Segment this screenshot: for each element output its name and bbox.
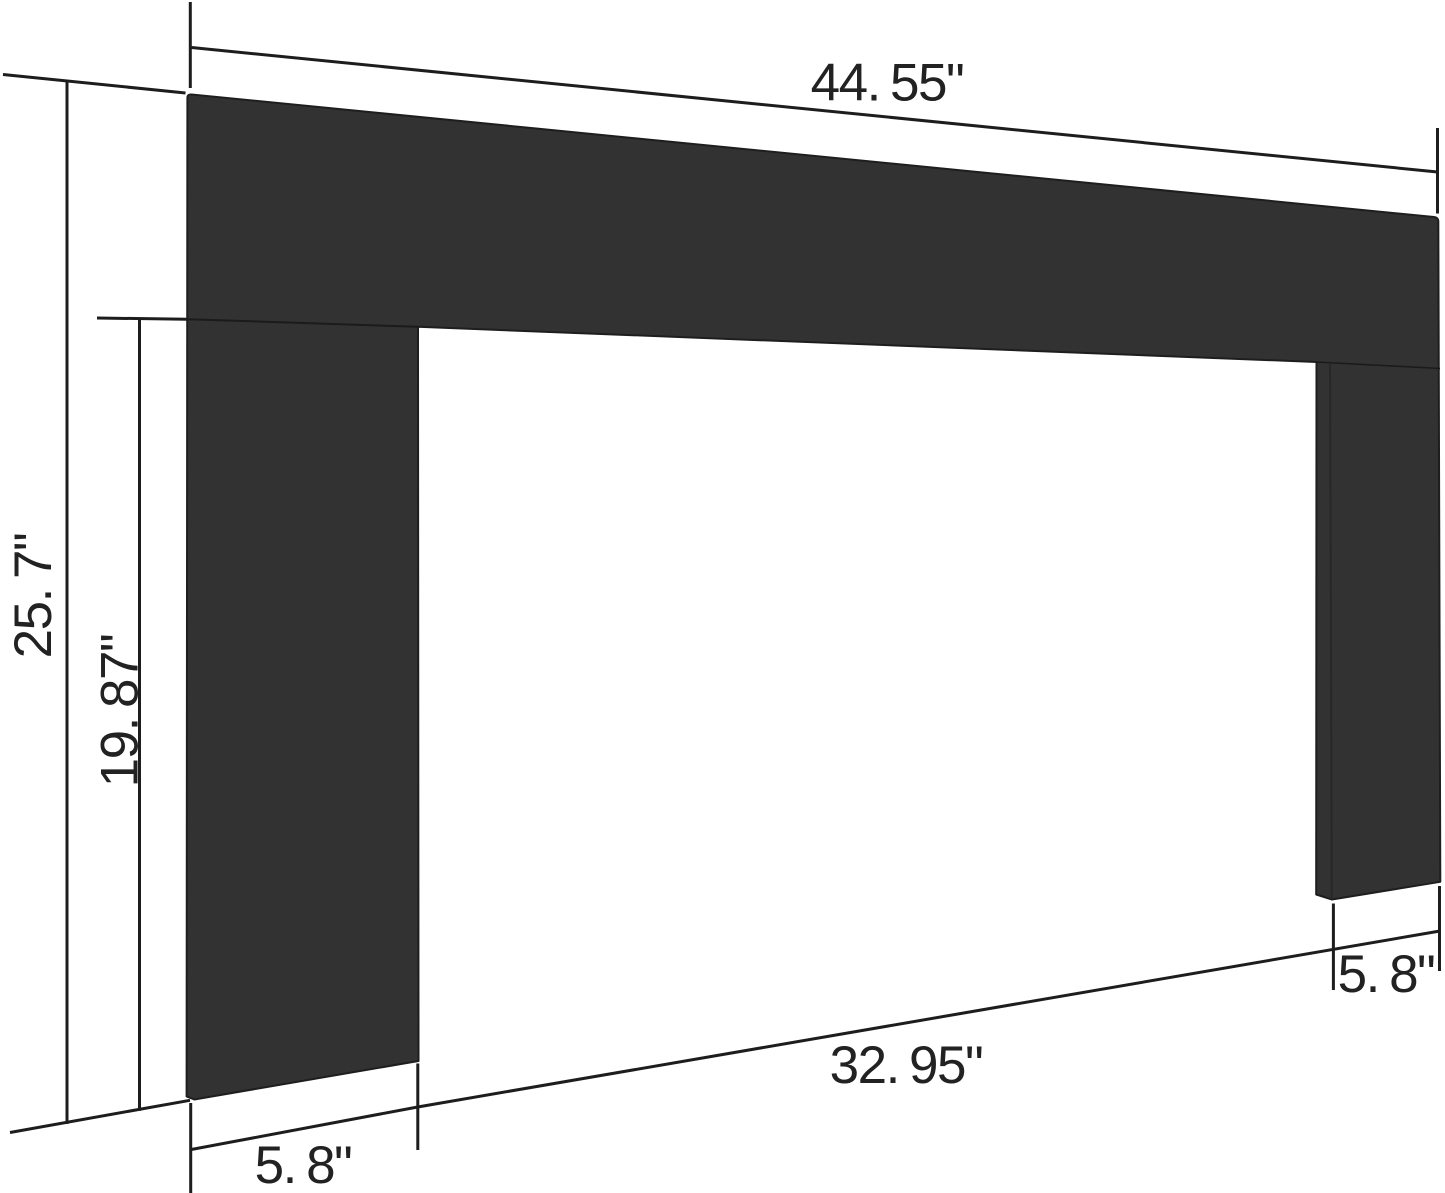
svg-text:5. 8": 5. 8" [1338,945,1435,1004]
svg-text:32. 95": 32. 95" [830,1036,983,1095]
svg-text:25. 7": 25. 7" [4,534,63,659]
svg-text:5. 8": 5. 8" [255,1136,352,1193]
svg-text:44. 55": 44. 55" [811,54,964,113]
svg-text:19. 87": 19. 87" [91,635,150,788]
